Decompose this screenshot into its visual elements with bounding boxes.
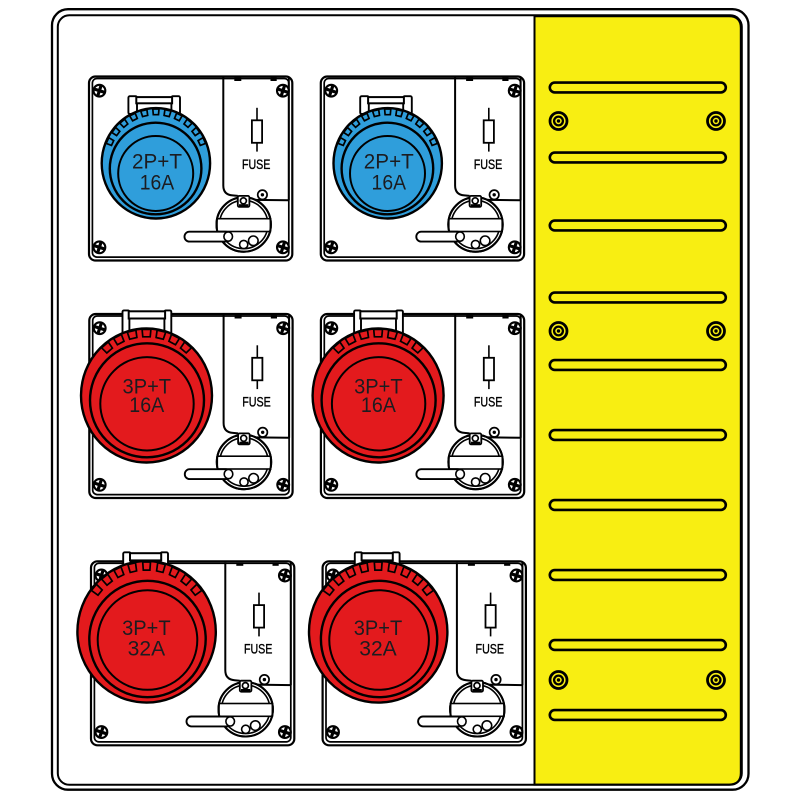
svg-text:16A: 16A	[129, 393, 165, 417]
svg-text:16A: 16A	[361, 393, 397, 417]
svg-text:32A: 32A	[128, 637, 166, 661]
svg-text:32A: 32A	[359, 637, 397, 661]
svg-text:16A: 16A	[140, 170, 175, 194]
svg-text:16A: 16A	[372, 170, 407, 194]
